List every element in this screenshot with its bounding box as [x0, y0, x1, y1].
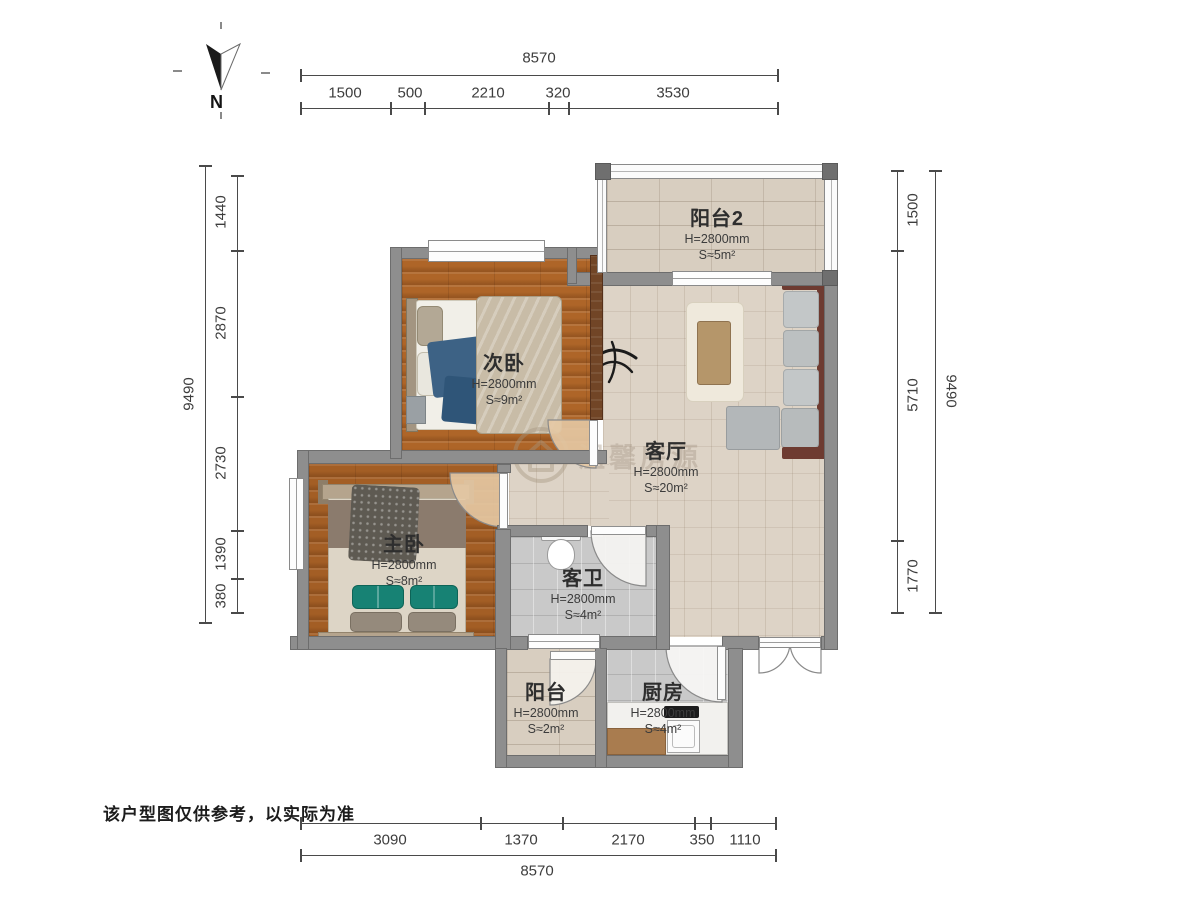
- dim-tick: [891, 612, 904, 614]
- sofa-cushion: [783, 369, 819, 406]
- wall: [297, 450, 607, 464]
- dim-tick: [300, 69, 302, 82]
- wall: [495, 529, 511, 650]
- dim-tick: [199, 622, 212, 624]
- wall: [728, 648, 743, 768]
- dim-right-total: 9490: [943, 374, 960, 407]
- dim-tick: [300, 849, 302, 862]
- floorplan-canvas: N: [0, 0, 1200, 900]
- room-label-living-room: 客厅 H=2800mm S≈20m²: [634, 440, 699, 496]
- balcony2-rail-right: [824, 164, 838, 286]
- dim-tick: [568, 102, 570, 115]
- wall: [595, 648, 607, 768]
- dim-left-seg: 1390: [213, 537, 230, 570]
- dim-tick: [231, 530, 244, 532]
- dim-tick: [424, 102, 426, 115]
- dim-tick: [777, 69, 779, 82]
- compass-dash-north: [220, 22, 222, 29]
- bed1-pillow: [350, 612, 402, 632]
- dim-bottom-seg: 1370: [504, 832, 537, 849]
- dim-tick: [775, 817, 777, 830]
- room-height: H=2800mm: [372, 557, 437, 573]
- sofa-frame-bottom: [782, 447, 828, 459]
- dim-right-seg: 1770: [905, 559, 922, 592]
- compass-dash-west: [173, 70, 182, 72]
- balcony2-rail-left: [597, 172, 607, 273]
- room-area: S≈4m²: [631, 721, 696, 737]
- north-label: N: [210, 92, 223, 113]
- dim-tick: [231, 396, 244, 398]
- dim-tick: [710, 817, 712, 830]
- dim-left-total: 9490: [181, 377, 198, 410]
- bed2-stool: [406, 396, 426, 424]
- compass-dash-east: [261, 72, 270, 74]
- dim-line-left-inner: [237, 175, 238, 613]
- wall: [656, 525, 670, 650]
- sofa-cushion: [783, 291, 819, 328]
- room-height: H=2800mm: [472, 376, 537, 392]
- dim-tick: [199, 165, 212, 167]
- dim-line-bottom-inner: [300, 823, 776, 824]
- room-name: 主卧: [372, 533, 437, 557]
- room-area: S≈5m²: [685, 247, 750, 263]
- dim-line-top-outer: [300, 75, 778, 76]
- dim-tick: [300, 102, 302, 115]
- door-leaf-second-bedroom: [589, 420, 598, 466]
- dim-right-seg: 1500: [905, 193, 922, 226]
- dim-tick: [891, 540, 904, 542]
- dim-tick: [480, 817, 482, 830]
- dim-tick: [929, 170, 942, 172]
- entry-door-sill: [759, 637, 821, 648]
- wall: [390, 247, 402, 459]
- door-leaf-balcony: [550, 651, 596, 660]
- dim-left-seg: 1440: [213, 195, 230, 228]
- wall-post: [595, 163, 611, 180]
- bed1-pillow: [408, 612, 456, 632]
- wall: [495, 648, 507, 768]
- dim-tick: [694, 817, 696, 830]
- room-height: H=2800mm: [551, 591, 616, 607]
- dim-top-seg: 500: [397, 85, 422, 102]
- dim-left-seg: 2730: [213, 446, 230, 479]
- window-bathroom: [528, 634, 600, 649]
- window-living-balcony2: [672, 271, 772, 286]
- disclaimer-text: 该户型图仅供参考，以实际为准: [103, 800, 355, 825]
- dim-tick: [548, 102, 550, 115]
- dim-bottom-seg: 350: [689, 832, 714, 849]
- wall-post: [822, 270, 838, 286]
- coffee-table: [697, 321, 731, 385]
- balcony2-rail-top: [595, 164, 838, 179]
- room-name: 厨房: [631, 681, 696, 705]
- wall-post: [822, 163, 838, 180]
- dim-bottom-seg: 3090: [373, 832, 406, 849]
- dim-top-seg: 3530: [656, 85, 689, 102]
- dim-tick: [777, 102, 779, 115]
- wall: [495, 755, 743, 768]
- dim-bottom-seg: 1110: [729, 832, 760, 849]
- room-height: H=2800mm: [514, 705, 579, 721]
- room-area: S≈8m²: [372, 573, 437, 589]
- dim-top-seg: 320: [545, 85, 570, 102]
- dim-tick: [775, 849, 777, 862]
- dim-bottom-seg: 2170: [611, 832, 644, 849]
- dim-tick: [891, 170, 904, 172]
- dim-left-seg: 2870: [213, 306, 230, 339]
- dim-left-seg: 380: [213, 583, 230, 608]
- dim-tick: [390, 102, 392, 115]
- dim-line-top-inner: [300, 108, 778, 109]
- wall: [824, 284, 838, 650]
- dim-tick: [231, 612, 244, 614]
- wall: [497, 464, 511, 473]
- dim-line-right-inner: [897, 170, 898, 613]
- room-name: 阳台: [514, 681, 579, 705]
- room-name: 阳台2: [685, 207, 750, 231]
- dim-top-seg: 1500: [328, 85, 361, 102]
- north-arrow-icon: [195, 32, 251, 94]
- dim-line-left-outer: [205, 165, 206, 623]
- dim-line-right-outer: [935, 170, 936, 613]
- room-label-master-bedroom: 主卧 H=2800mm S≈8m²: [372, 533, 437, 589]
- sofa-cushion: [783, 330, 819, 367]
- dim-tick: [891, 250, 904, 252]
- sofa-cushion: [781, 408, 819, 448]
- dim-line-bottom-outer: [300, 855, 776, 856]
- room-name: 次卧: [472, 352, 537, 376]
- room-height: H=2800mm: [685, 231, 750, 247]
- room-name: 客厅: [634, 440, 699, 464]
- dim-tick: [562, 817, 564, 830]
- door-leaf-kitchen: [717, 646, 726, 700]
- sofa-ottoman: [726, 406, 780, 450]
- room-label-balcony: 阳台 H=2800mm S≈2m²: [514, 681, 579, 737]
- room-label-bathroom: 客卫 H=2800mm S≈4m²: [551, 567, 616, 623]
- door-leaf-master-bedroom: [499, 473, 508, 529]
- dim-right-seg: 5710: [905, 378, 922, 411]
- door-leaf-bathroom: [591, 526, 646, 535]
- room-name: 客卫: [551, 567, 616, 591]
- dim-tick: [231, 250, 244, 252]
- room-area: S≈2m²: [514, 721, 579, 737]
- dim-top-seg: 2210: [471, 85, 504, 102]
- room-label-second-bedroom: 次卧 H=2800mm S≈9m²: [472, 352, 537, 408]
- wall: [567, 247, 577, 284]
- room-label-balcony2: 阳台2 H=2800mm S≈5m²: [685, 207, 750, 263]
- dim-top-total: 8570: [522, 50, 555, 67]
- room-label-kitchen: 厨房 H=2800mm S≈4m²: [631, 681, 696, 737]
- room-area: S≈9m²: [472, 392, 537, 408]
- dim-tick: [929, 612, 942, 614]
- dim-tick: [231, 578, 244, 580]
- dim-bottom-total: 8570: [520, 863, 553, 880]
- toilet-bowl: [547, 539, 575, 570]
- window-master-bedroom: [289, 478, 304, 570]
- wall: [290, 636, 520, 650]
- room-area: S≈4m²: [551, 607, 616, 623]
- room-area: S≈20m²: [634, 480, 699, 496]
- room-height: H=2800mm: [634, 464, 699, 480]
- dim-tick: [231, 175, 244, 177]
- wall-wood-divider: [590, 255, 603, 420]
- compass-dash-south: [220, 112, 222, 119]
- room-height: H=2800mm: [631, 705, 696, 721]
- window-second-bedroom: [428, 240, 545, 262]
